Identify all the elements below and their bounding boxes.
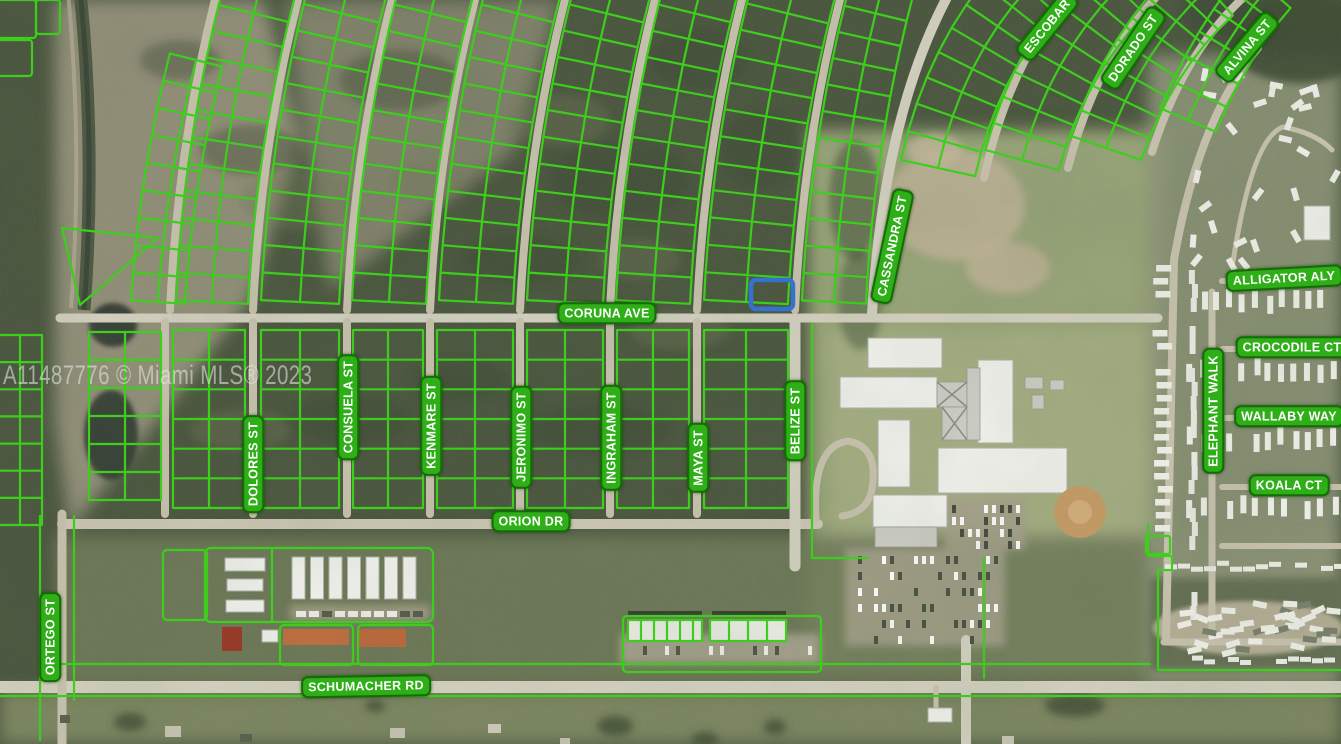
street-label-dolores-st: DOLORES ST	[242, 415, 264, 513]
street-label-ingraham-st: INGRAHAM ST	[600, 385, 622, 491]
street-label-alligator-aly: ALLIGATOR ALY	[1225, 264, 1341, 292]
street-label-schumacher-rd: SCHUMACHER RD	[301, 674, 431, 698]
street-label-crocodile-ct: CROCODILE CT	[1236, 336, 1341, 358]
street-label-orion-dr: ORION DR	[492, 510, 571, 532]
street-label-maya-st: MAYA ST	[687, 423, 709, 493]
street-label-coruna-ave: CORUNA AVE	[557, 302, 656, 324]
street-label-jeronimo-st: JERONIMO ST	[510, 385, 532, 488]
street-label-ortego-st: ORTEGO ST	[39, 592, 61, 682]
street-label-alvina-st: ALVINA ST	[1213, 9, 1282, 85]
street-labels-layer: ORTEGO STDOLORES STCONSUELA STKENMARE ST…	[0, 0, 1341, 744]
street-label-koala-ct: KOALA CT	[1249, 474, 1330, 496]
street-label-dorado-st: DORADO ST	[1098, 4, 1167, 92]
street-label-consuela-st: CONSUELA ST	[337, 354, 359, 460]
map-canvas: A11487776 © Miami MLS® 2023 ORTEGO STDOL…	[0, 0, 1341, 744]
street-label-wallaby-way: WALLABY WAY	[1234, 405, 1341, 427]
street-label-kenmare-st: KENMARE ST	[420, 376, 442, 476]
street-label-elephant-walk: ELEPHANT WALK	[1202, 348, 1224, 474]
street-label-belize-st: BELIZE ST	[784, 381, 806, 462]
street-label-cassandra-st: CASSANDRA ST	[869, 187, 914, 305]
street-label-escobar: ESCOBAR	[1014, 0, 1080, 63]
